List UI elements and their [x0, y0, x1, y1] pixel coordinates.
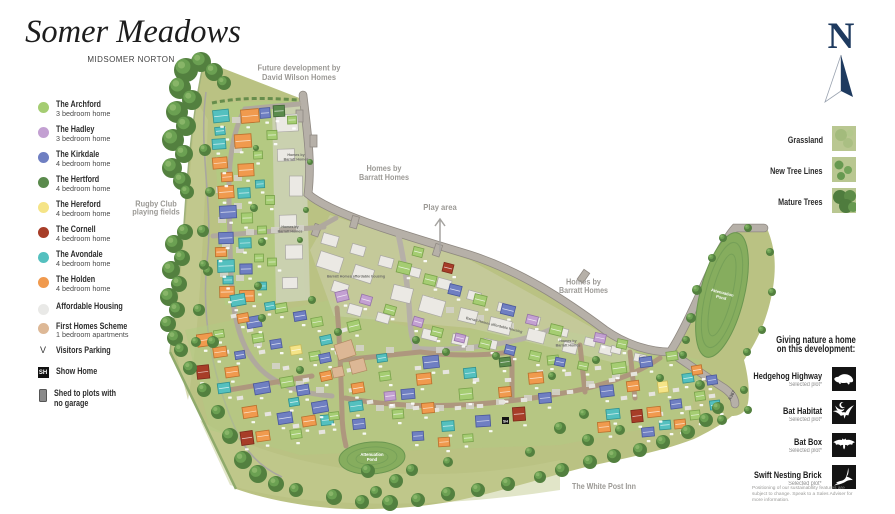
svg-text:Future development byDavid Wil: Future development byDavid Wilson Homes: [258, 63, 341, 83]
svg-text:Rugby Clubplaying fields: Rugby Clubplaying fields: [132, 198, 180, 216]
svg-text:Homes byBarratt Homes: Homes byBarratt Homes: [359, 163, 409, 182]
svg-text:Play area: Play area: [423, 202, 457, 212]
svg-text:The White Post Inn: The White Post Inn: [572, 481, 636, 491]
svg-text:Homes byBarratt Homes: Homes byBarratt Homes: [559, 277, 608, 296]
svg-text:Barratt Homes affordable housi: Barratt Homes affordable housing: [327, 275, 385, 279]
svg-text:SH: SH: [503, 419, 508, 423]
